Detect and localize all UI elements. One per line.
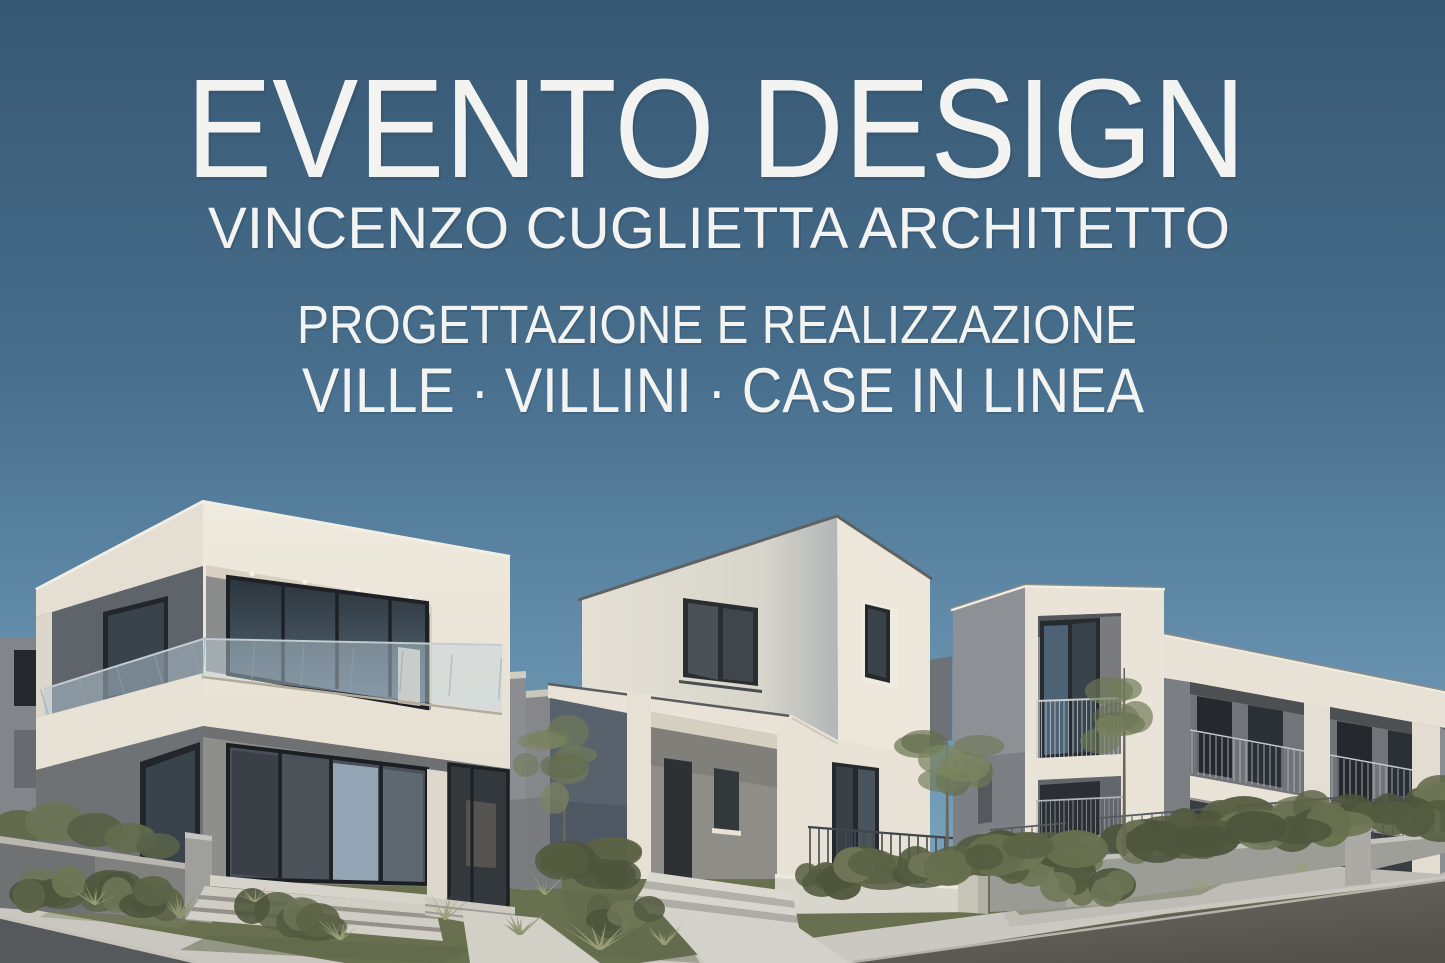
svg-text:VINCENZO CUGLIETTA ARCHITETTO: VINCENZO CUGLIETTA ARCHITETTO — [208, 196, 1230, 261]
svg-text:VILLE · VILLINI · CASE IN LINE: VILLE · VILLINI · CASE IN LINEA — [302, 356, 1144, 426]
svg-text:EVENTO DESIGN: EVENTO DESIGN — [186, 49, 1246, 207]
svg-text:PROGETTAZIONE E REALIZZAZIONE: PROGETTAZIONE E REALIZZAZIONE — [297, 295, 1137, 355]
